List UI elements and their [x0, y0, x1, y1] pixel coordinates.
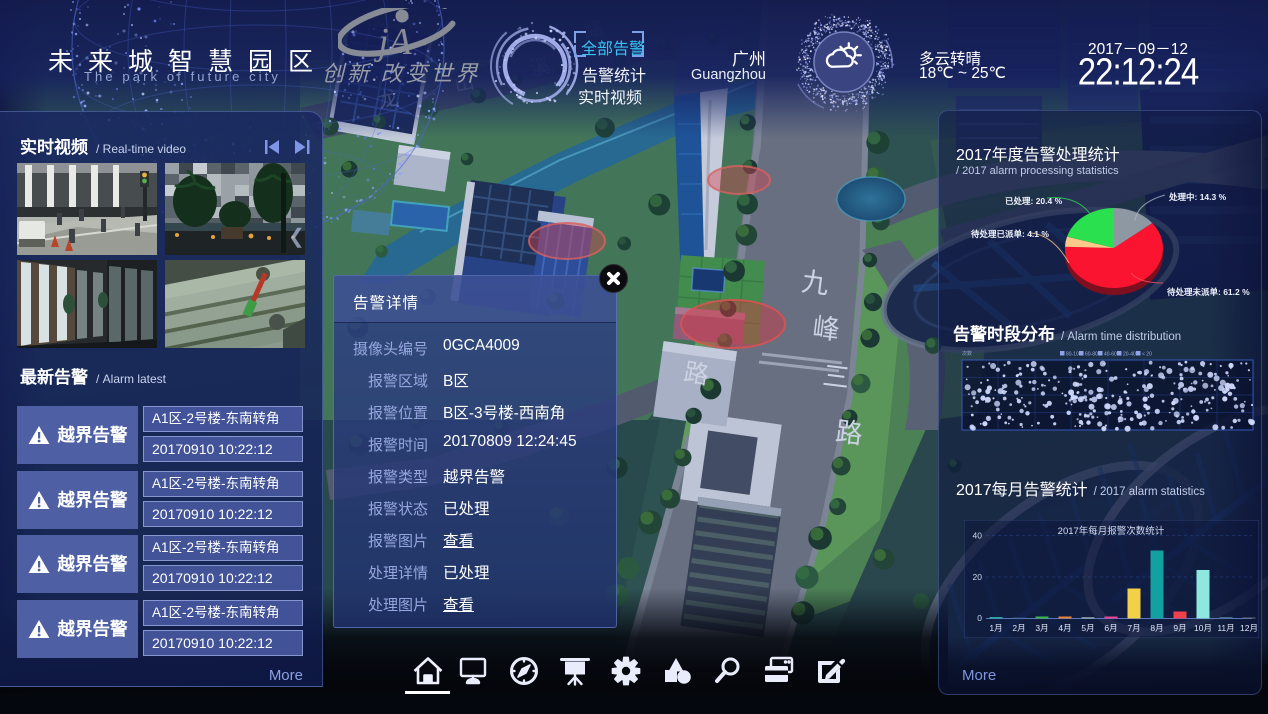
svg-text:40: 40	[973, 531, 983, 541]
svg-text:60-80: 60-80	[1085, 352, 1098, 358]
svg-text:20: 20	[973, 572, 983, 582]
svg-text:40-60: 40-60	[1104, 352, 1117, 358]
svg-text:待处理未派单: 61.2 %: 待处理未派单: 61.2 %	[1166, 287, 1250, 297]
svg-text:20-40: 20-40	[1123, 352, 1136, 358]
svg-text:处理中: 14.3 %: 处理中: 14.3 %	[1168, 192, 1227, 202]
svg-text:已处理: 20.4 %: 已处理: 20.4 %	[1005, 196, 1063, 206]
svg-text:待处理已派单: 4.1 %: 待处理已派单: 4.1 %	[970, 229, 1049, 239]
svg-text:< 20: < 20	[1142, 352, 1152, 358]
svg-text:0: 0	[977, 613, 982, 623]
svg-text:次数: 次数	[962, 350, 972, 357]
